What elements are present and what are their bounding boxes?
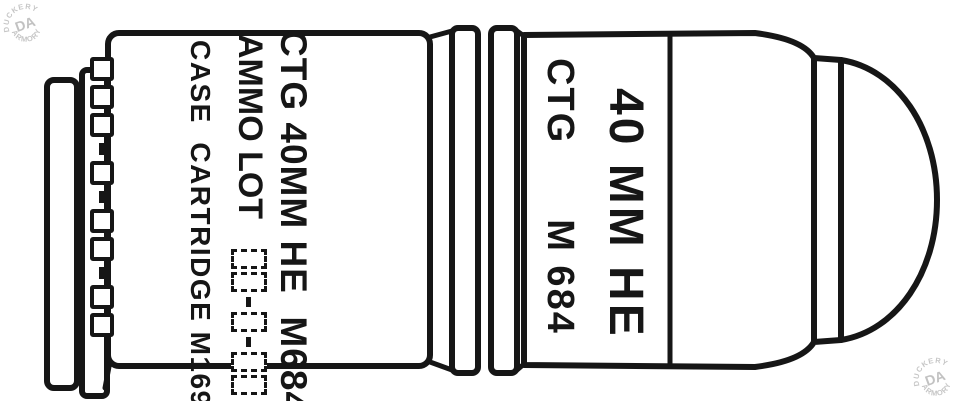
lot-box-placeholder xyxy=(231,375,267,395)
lot-box-placeholder xyxy=(90,313,114,337)
case-marking-line1: CTG 40MM HE M684 xyxy=(274,30,312,401)
case-mouth-edge-bottom xyxy=(430,362,452,370)
obturation-band-front xyxy=(491,28,517,373)
lot-dash xyxy=(99,143,104,155)
case-mouth-edge-top xyxy=(430,31,452,37)
cartridge-line-drawing: CTG 40MM HE M684 AMMO LOT CASE CARTRIDGE… xyxy=(0,0,960,401)
projectile-ctg-label: CTG xyxy=(539,58,579,144)
case-body-outline xyxy=(108,33,430,366)
lot-dash xyxy=(247,337,252,347)
lot-box-placeholder xyxy=(231,249,267,269)
lot-box-placeholder xyxy=(90,57,114,81)
ammo-lot-label: AMMO LOT xyxy=(231,34,266,219)
obturation-band-rear xyxy=(452,28,478,373)
lot-box-placeholder xyxy=(90,237,114,261)
loading-lot-placeholder-row xyxy=(90,57,114,337)
lot-dash xyxy=(99,191,104,203)
case-ammo-lot-line: AMMO LOT xyxy=(231,34,267,395)
projectile-marking-line1: CTG M 684 xyxy=(539,58,579,335)
lot-box-placeholder xyxy=(90,209,114,233)
lot-box-placeholder xyxy=(90,285,114,309)
lot-box-placeholder xyxy=(90,113,114,137)
lot-dash xyxy=(247,297,252,307)
lot-box-placeholder xyxy=(90,85,114,109)
lot-box-placeholder xyxy=(231,272,267,292)
case-marking-line3: CASE CARTRIDGE M169 xyxy=(186,40,215,401)
projectile-model-label: M 684 xyxy=(539,219,579,335)
lot-box-placeholder xyxy=(231,312,267,332)
lot-dash xyxy=(99,267,104,279)
case-loading-lot-line xyxy=(57,57,148,337)
lot-box-placeholder xyxy=(231,352,267,372)
ammo-lot-placeholder-row xyxy=(231,249,267,395)
projectile-caliber-marking: 40 MM HE xyxy=(600,88,650,339)
projectile-outline xyxy=(524,33,937,367)
lot-box-placeholder xyxy=(90,161,114,185)
